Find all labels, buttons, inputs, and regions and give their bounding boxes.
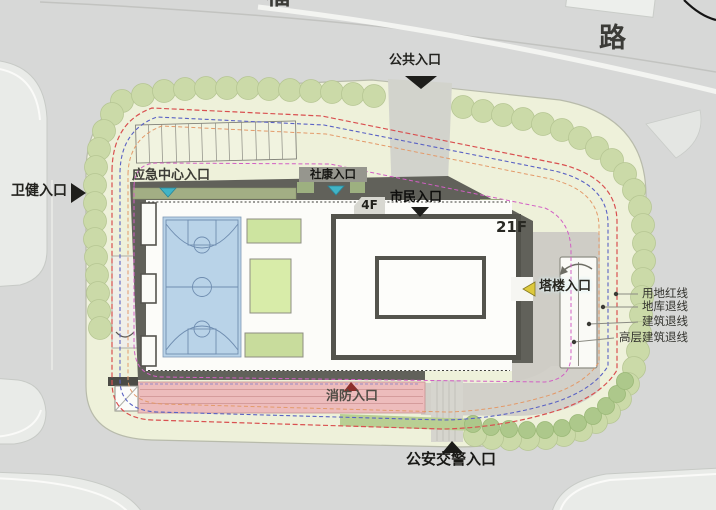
stair-core (141, 336, 156, 366)
tree-icon (237, 77, 260, 100)
lawn-panel (247, 219, 301, 243)
tree-icon (153, 80, 176, 103)
hedge-tree-icon (519, 422, 536, 439)
tree-icon (363, 85, 386, 108)
stair-core (141, 203, 156, 245)
tree-icon (472, 100, 495, 123)
tree-icon (174, 78, 197, 101)
basement-ramp (560, 257, 597, 368)
lawn-panel (250, 259, 291, 313)
tree-icon (452, 96, 475, 119)
hedge-tree-icon (554, 420, 571, 437)
tree-icon (258, 78, 281, 101)
tree-icon (216, 77, 239, 100)
tree-icon (342, 83, 365, 106)
tree-icon (89, 317, 112, 340)
police-entrance-walk (431, 380, 463, 442)
lawn-panel (245, 333, 303, 357)
tree-icon (279, 79, 302, 102)
tree-icon (492, 104, 515, 127)
stair-core (141, 274, 156, 303)
tree-icon (300, 80, 323, 103)
podium-planter (350, 182, 365, 193)
site-plan-drawing (0, 0, 716, 510)
tree-icon (132, 84, 155, 107)
hedge-tree-icon (570, 415, 587, 432)
tree-icon (512, 108, 535, 131)
podium-planter (297, 182, 314, 193)
podium-planter (133, 188, 296, 199)
hedge-tree-icon (483, 419, 500, 436)
parcel-top-left (0, 60, 47, 287)
basketball-court (163, 217, 241, 357)
tree-icon (321, 81, 344, 104)
hedge-tree-icon (537, 422, 554, 439)
fire-lane (138, 382, 425, 413)
tower-building (331, 214, 533, 360)
tree-icon (195, 77, 218, 100)
site-plan: 福 路 公共入口 卫健入口 应急中心入口 社康入口 市民入口 4F 21F 塔楼… (0, 0, 716, 510)
fire-lane-end-pad (115, 386, 138, 411)
hedge-tree-icon (617, 373, 634, 390)
